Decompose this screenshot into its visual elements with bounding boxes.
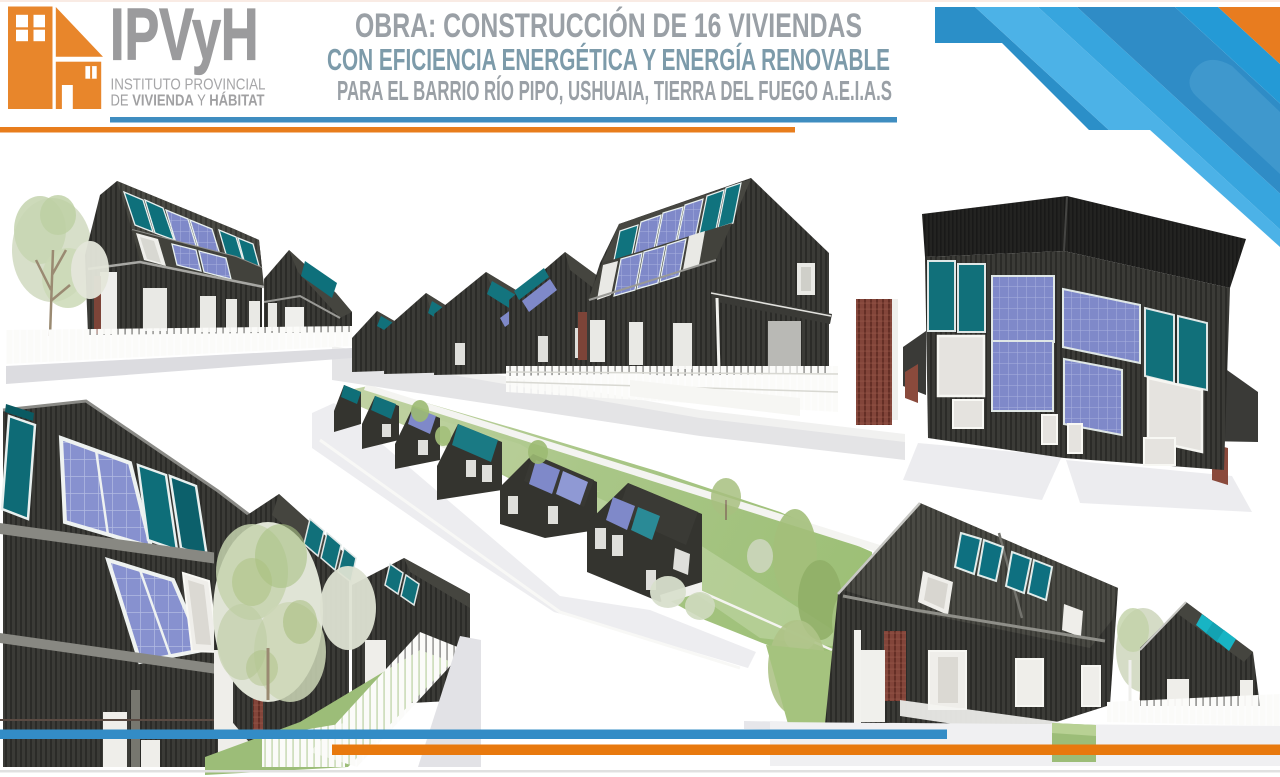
svg-text:IPVyH: IPVyH: [110, 0, 259, 76]
svg-text:INSTITUTO PROVINCIAL: INSTITUTO PROVINCIAL: [111, 77, 266, 94]
svg-text:CON EFICIENCIA ENERGÉTICA Y EN: CON EFICIENCIA ENERGÉTICA Y ENERGÍA RENO…: [327, 42, 890, 77]
svg-text:PARA EL BARRIO RÍO PIPO, USHUA: PARA EL BARRIO RÍO PIPO, USHUAIA, TIERRA…: [337, 75, 892, 106]
svg-text:DE VIVIENDA Y HÁBITAT: DE VIVIENDA Y HÁBITAT: [111, 91, 265, 110]
svg-text:OBRA: CONSTRUCCIÓN DE 16 VIV: OBRA: CONSTRUCCIÓN DE 16 VIVIENDAS: [355, 5, 862, 45]
